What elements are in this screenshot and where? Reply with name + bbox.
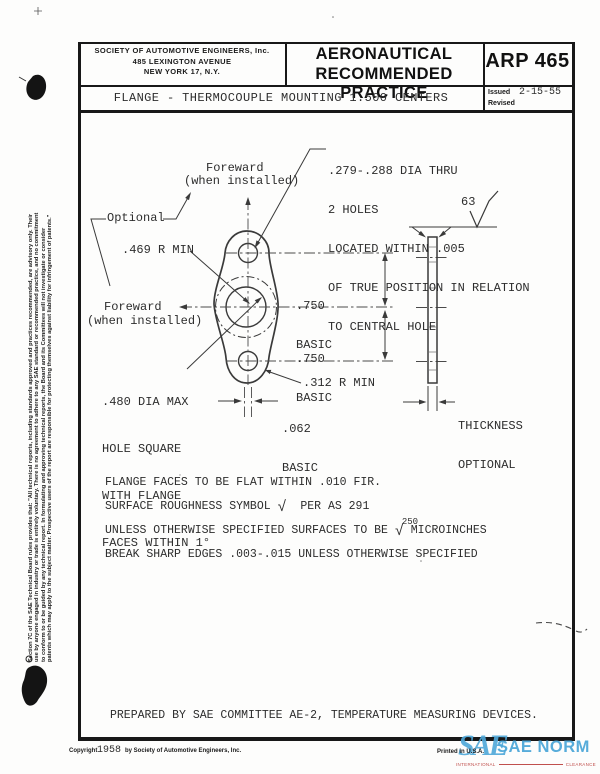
scanned-document-page: SOCIETY OF AUTOMOTIVE ENGINEERS, Inc. 48… bbox=[0, 0, 600, 774]
issued-label: Issued bbox=[488, 89, 510, 96]
publisher-street: 485 LEXINGTON AVENUE bbox=[81, 57, 283, 68]
publisher-city: NEW YORK 17, N.Y. bbox=[81, 67, 283, 78]
roughness-check-icon: √ bbox=[278, 503, 287, 513]
revised-label: Revised bbox=[488, 100, 515, 107]
foreward-left-label: Foreward bbox=[104, 301, 162, 314]
foreward-top-label2: (when installed) bbox=[184, 175, 299, 188]
sae-rules-disclaimer: Section 7C of the SAE Technical Board ru… bbox=[28, 116, 54, 662]
watermark-text: SAE NORM bbox=[497, 738, 590, 757]
issued-date: 2-15-55 bbox=[519, 87, 561, 98]
radius-312-callout: .312 R MIN bbox=[303, 377, 375, 390]
title-block-divider bbox=[81, 110, 572, 113]
document-number: ARP 465 bbox=[483, 50, 572, 73]
note-roughness: UNLESS OTHERWISE SPECIFIED SURFACES TO B… bbox=[105, 525, 487, 538]
printed-in-usa: Printed in U.S.A. bbox=[437, 749, 484, 755]
watermark-rule bbox=[499, 764, 563, 765]
surface-finish-value: 63 bbox=[461, 196, 475, 209]
note-edges: BREAK SHARP EDGES .003-.015 UNLESS OTHER… bbox=[105, 549, 478, 562]
copyright-owner: by Society of Automotive Engineers, Inc. bbox=[125, 748, 241, 754]
publisher-address-block: SOCIETY OF AUTOMOTIVE ENGINEERS, Inc. 48… bbox=[81, 46, 283, 78]
note-flatness: FLANGE FACES TO BE FLAT WITHIN .010 FIR. bbox=[105, 477, 381, 490]
radius-469-callout: .469 R MIN bbox=[122, 244, 194, 257]
copyright-label: Copyright bbox=[69, 748, 97, 754]
prepared-by-line: PREPARED BY SAE COMMITTEE AE-2, TEMPERAT… bbox=[110, 710, 538, 723]
note-surface-symbol: SURFACE ROUGHNESS SYMBOL √ PER AS 291 bbox=[105, 501, 369, 514]
copyright-year: 1958 bbox=[97, 745, 121, 756]
publisher-name: SOCIETY OF AUTOMOTIVE ENGINEERS, Inc. bbox=[81, 46, 283, 57]
document-title: FLANGE - THERMOCOUPLE MOUNTING 1.500 CEN… bbox=[81, 92, 481, 105]
thickness-callout: THICKNESS OPTIONAL bbox=[458, 394, 523, 498]
holes-callout: .279-.288 DIA THRU 2 HOLES LOCATED WITHI… bbox=[328, 139, 530, 360]
optional-label: Optional bbox=[107, 212, 165, 225]
foreward-left-label2: (when installed) bbox=[87, 315, 202, 328]
roughness-250-icon: 250√ bbox=[395, 527, 404, 537]
watermark-subline: INTERNATIONAL CLEARANCE bbox=[456, 762, 596, 767]
